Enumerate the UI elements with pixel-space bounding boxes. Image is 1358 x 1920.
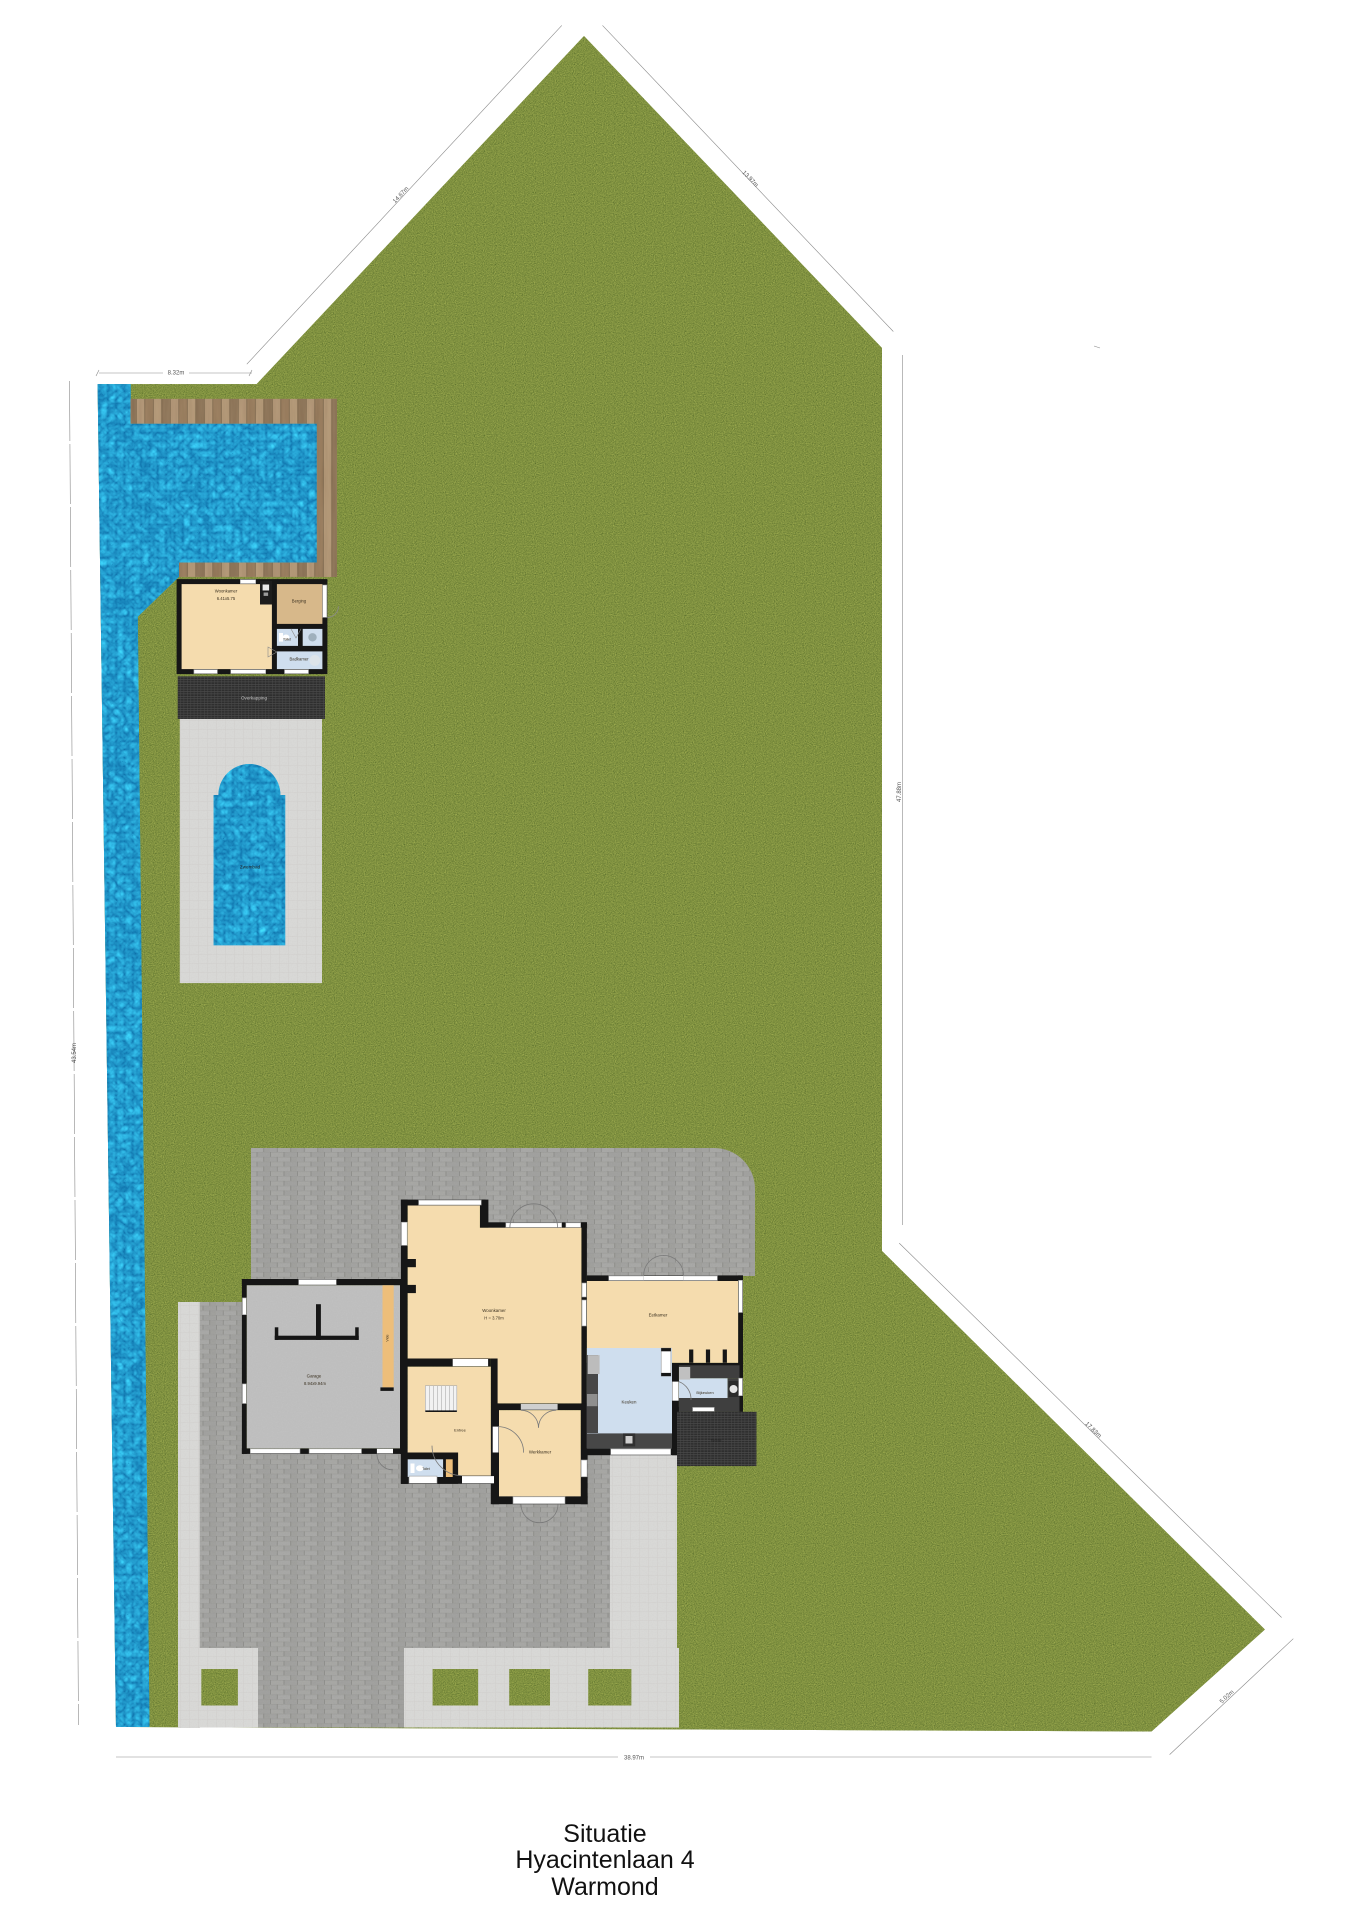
svg-text:Situatie: Situatie — [563, 1820, 646, 1848]
svg-text:5.02m: 5.02m — [1219, 1689, 1235, 1705]
svg-text:Toilet: Toilet — [283, 638, 291, 642]
svg-text:Terras: Terras — [710, 1438, 721, 1443]
svg-text:Woonkamer: Woonkamer — [215, 589, 238, 594]
svg-text:13.97m: 13.97m — [741, 170, 759, 189]
svg-text:6.41x5.75: 6.41x5.75 — [217, 596, 236, 601]
svg-text:38.97m: 38.97m — [624, 1756, 644, 1762]
svg-text:Vide: Vide — [386, 1334, 390, 1341]
svg-text:8.32m: 8.32m — [168, 371, 185, 377]
svg-text:Hyacintenlaan 4: Hyacintenlaan 4 — [515, 1846, 694, 1874]
svg-text:Werkkamer: Werkkamer — [529, 1450, 552, 1455]
svg-text:43.54m: 43.54m — [72, 1043, 78, 1063]
svg-text:Berging: Berging — [292, 599, 307, 604]
svg-text:17.83m: 17.83m — [1083, 1421, 1101, 1439]
svg-text:Garage: Garage — [307, 1374, 322, 1379]
svg-text:Bijkeuken: Bijkeuken — [696, 1390, 713, 1395]
svg-text:47.88m: 47.88m — [897, 782, 903, 802]
svg-text:8.94x9.94m: 8.94x9.94m — [304, 1381, 326, 1386]
svg-text:Keuken: Keuken — [622, 1400, 637, 1405]
svg-text:Toilet: Toilet — [422, 1467, 430, 1471]
svg-text:Overkapping: Overkapping — [241, 696, 267, 701]
svg-text:Entree: Entree — [454, 1428, 467, 1433]
svg-text:Warmond: Warmond — [551, 1873, 658, 1901]
svg-text:Zwembad: Zwembad — [240, 865, 261, 870]
svg-text:H = 3.70m: H = 3.70m — [484, 1316, 504, 1321]
svg-text:14.67m: 14.67m — [392, 186, 410, 205]
svg-text:Eetkamer: Eetkamer — [649, 1313, 668, 1318]
svg-text:Badkamer: Badkamer — [289, 657, 309, 662]
svg-text:Woonkamer: Woonkamer — [482, 1308, 506, 1313]
